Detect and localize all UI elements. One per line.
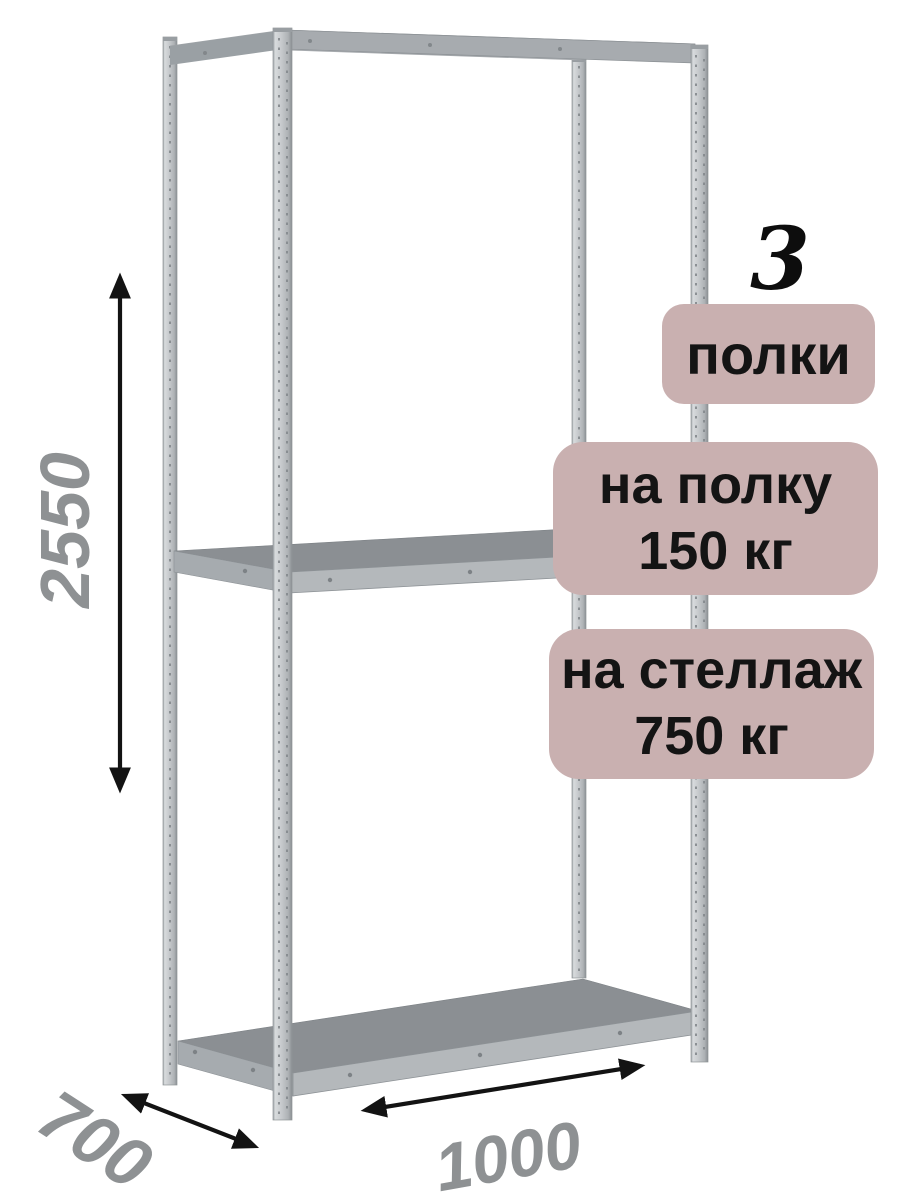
shelf-count-number: 3 [700,212,860,308]
rack-load-line1: на стеллаж [561,638,862,704]
shelf-top-left-edge [170,30,284,65]
shelf-top-front-edge [284,30,695,63]
rack-load-badge: на стеллаж 750 кг [549,629,874,779]
shelf-bottom [178,979,698,1096]
shelf-count-label: полки [686,322,851,387]
shelf-load-line2: 150 кг [638,519,793,585]
shelf-top [170,30,695,65]
shelf-load-line1: на полку [599,453,832,519]
rack-illustration [0,0,900,1200]
shelf-load-badge: на полку 150 кг [553,442,878,595]
height-dimension-label: 2550 [25,410,105,650]
shelf-count-badge: полки [662,304,875,404]
post-front-left [273,28,292,1120]
rack-load-line2: 750 кг [634,704,789,770]
product-image: 2550 700 1000 3 полки на полку 150 кг на… [0,0,900,1200]
